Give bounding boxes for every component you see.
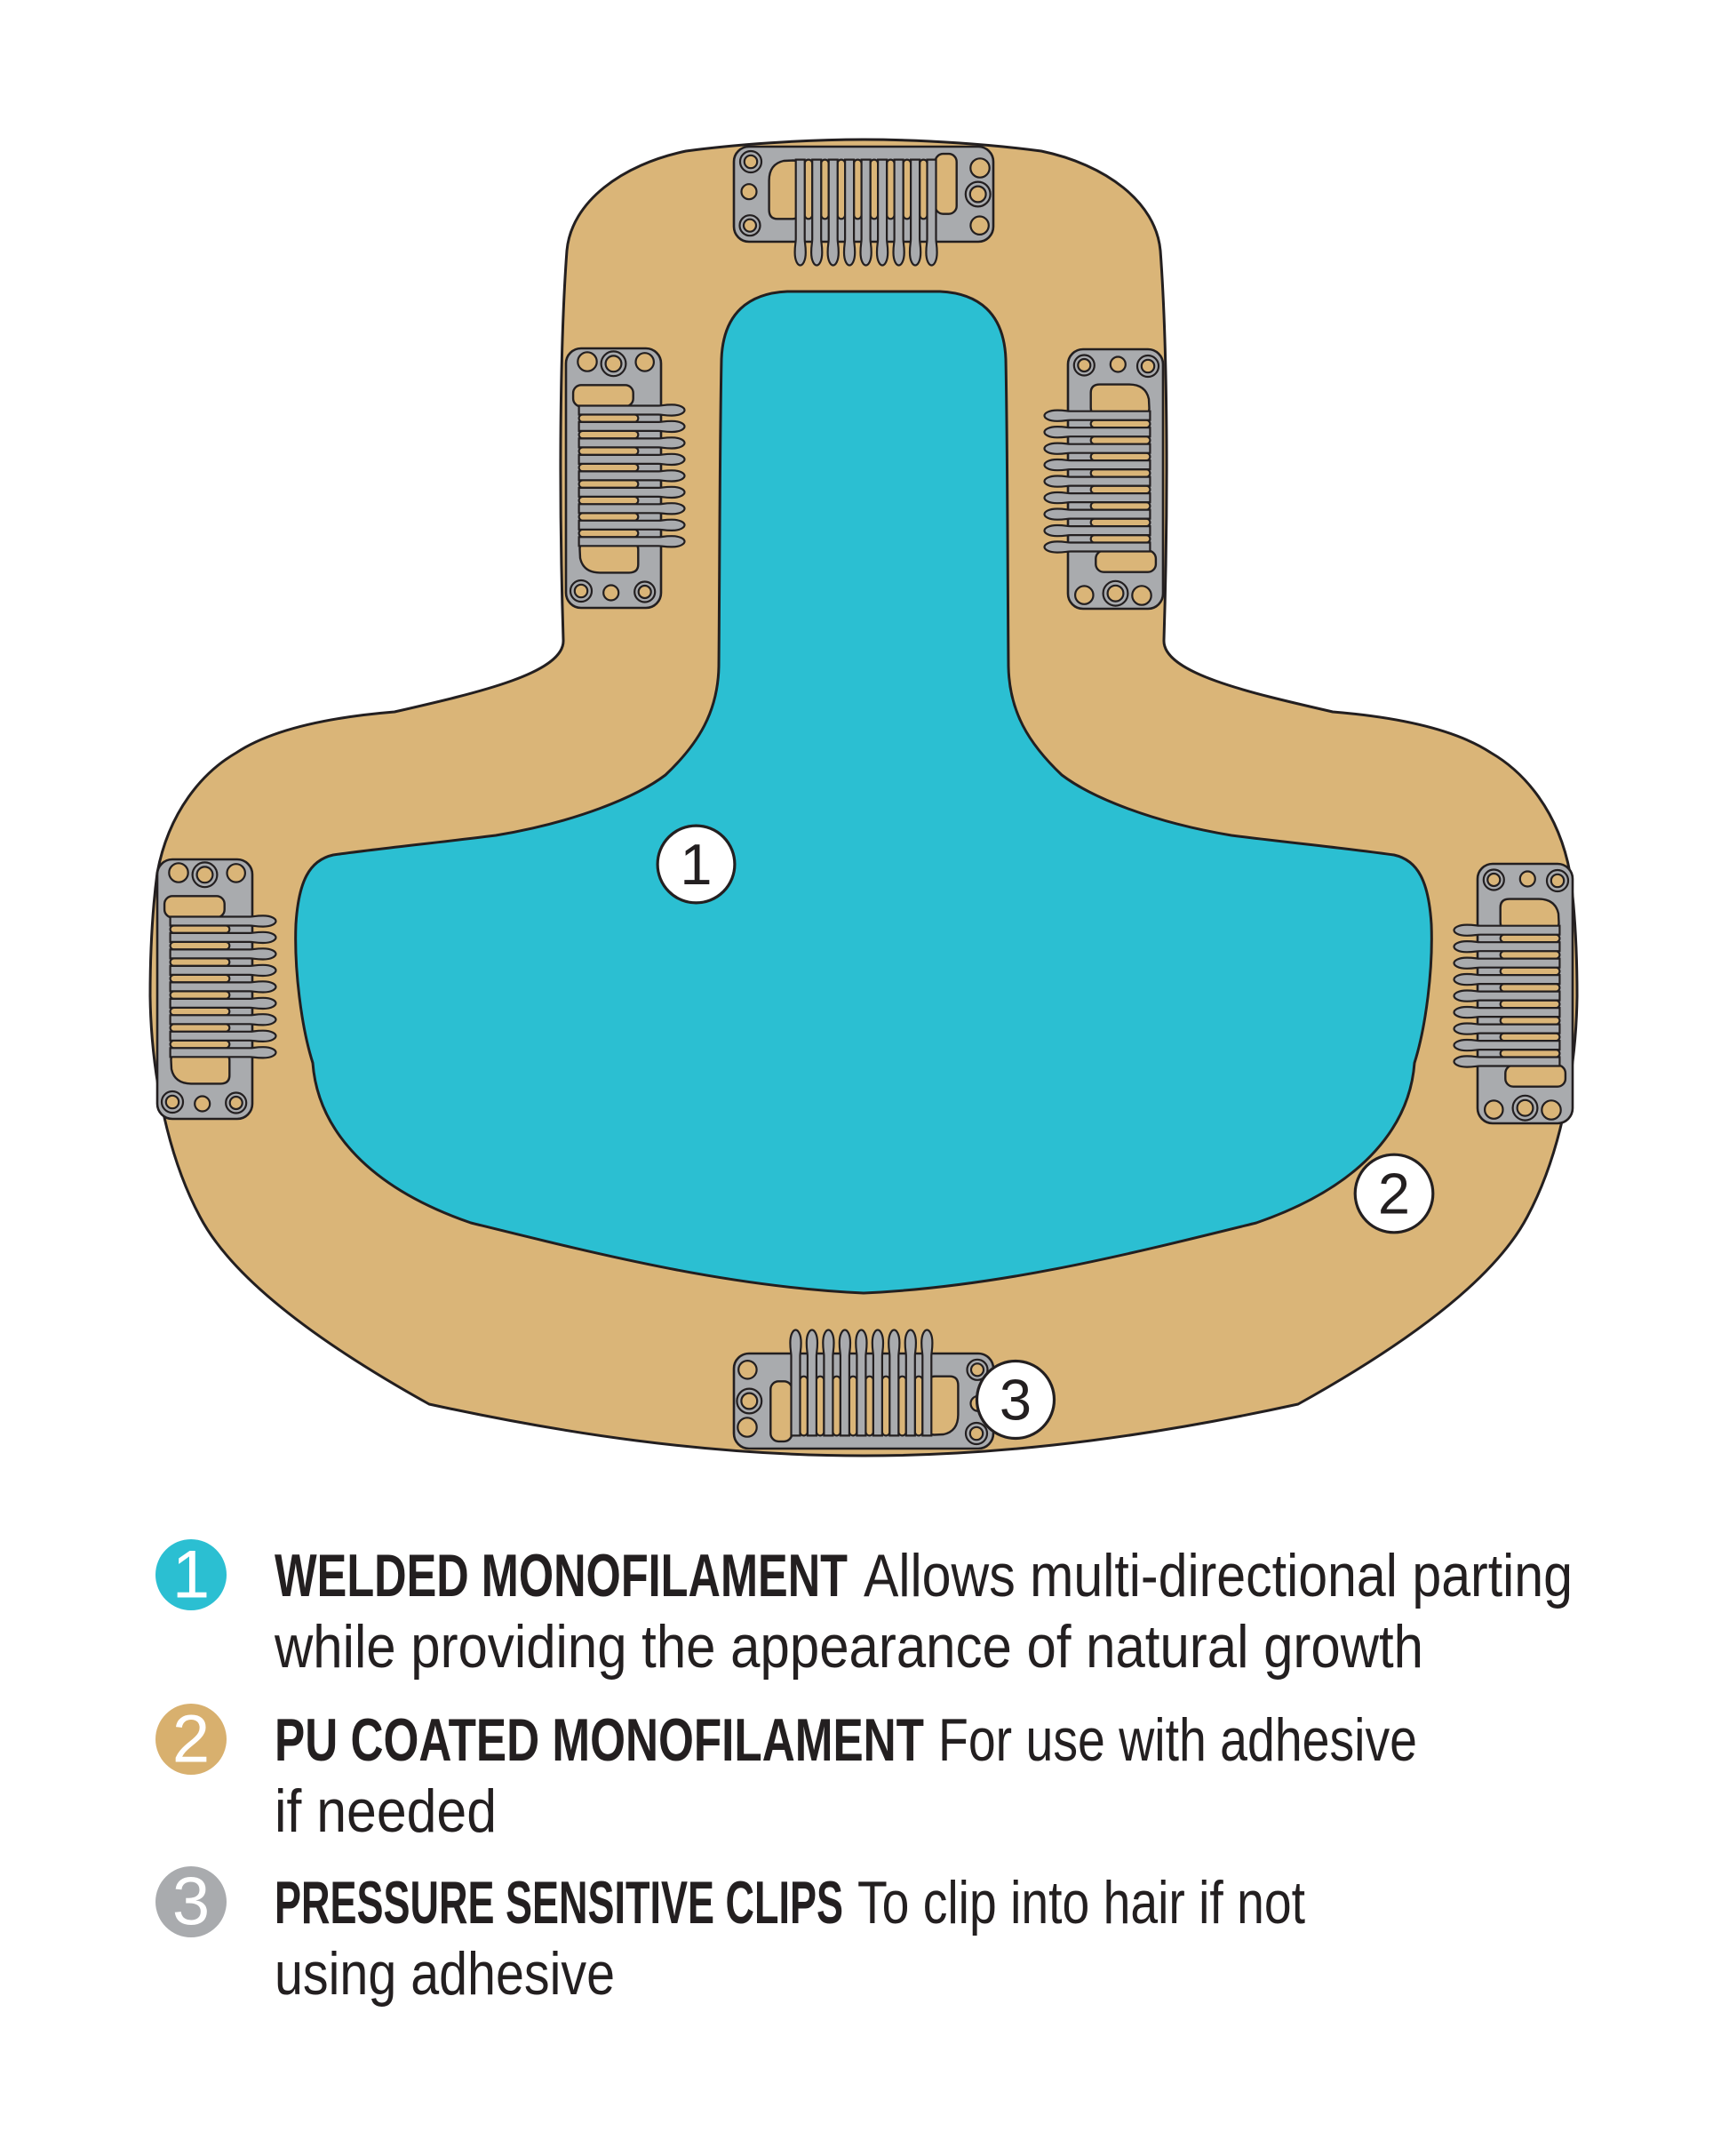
svg-text:2: 2 xyxy=(172,1702,210,1777)
svg-text:if needed: if needed xyxy=(275,1777,497,1845)
svg-text:3: 3 xyxy=(172,1865,210,1940)
svg-text:PRESSURE SENSITIVE CLIPS: PRESSURE SENSITIVE CLIPS xyxy=(275,1869,843,1936)
svg-text:To clip into hair if not: To clip into hair if not xyxy=(857,1869,1305,1936)
svg-text:1: 1 xyxy=(172,1537,210,1613)
svg-text:using adhesive: using adhesive xyxy=(275,1940,615,2008)
svg-text:while providing the appearance: while providing the appearance of natura… xyxy=(274,1613,1423,1681)
svg-text:3: 3 xyxy=(1000,1368,1032,1433)
svg-text:1: 1 xyxy=(680,832,712,897)
svg-text:WELDED MONOFILAMENT: WELDED MONOFILAMENT xyxy=(275,1542,848,1609)
svg-text:2: 2 xyxy=(1378,1162,1410,1226)
svg-text:For use with adhesive: For use with adhesive xyxy=(938,1706,1417,1774)
svg-text:PU COATED MONOFILAMENT: PU COATED MONOFILAMENT xyxy=(275,1706,924,1774)
svg-text:Allows multi-directional parti: Allows multi-directional parting xyxy=(864,1542,1573,1609)
